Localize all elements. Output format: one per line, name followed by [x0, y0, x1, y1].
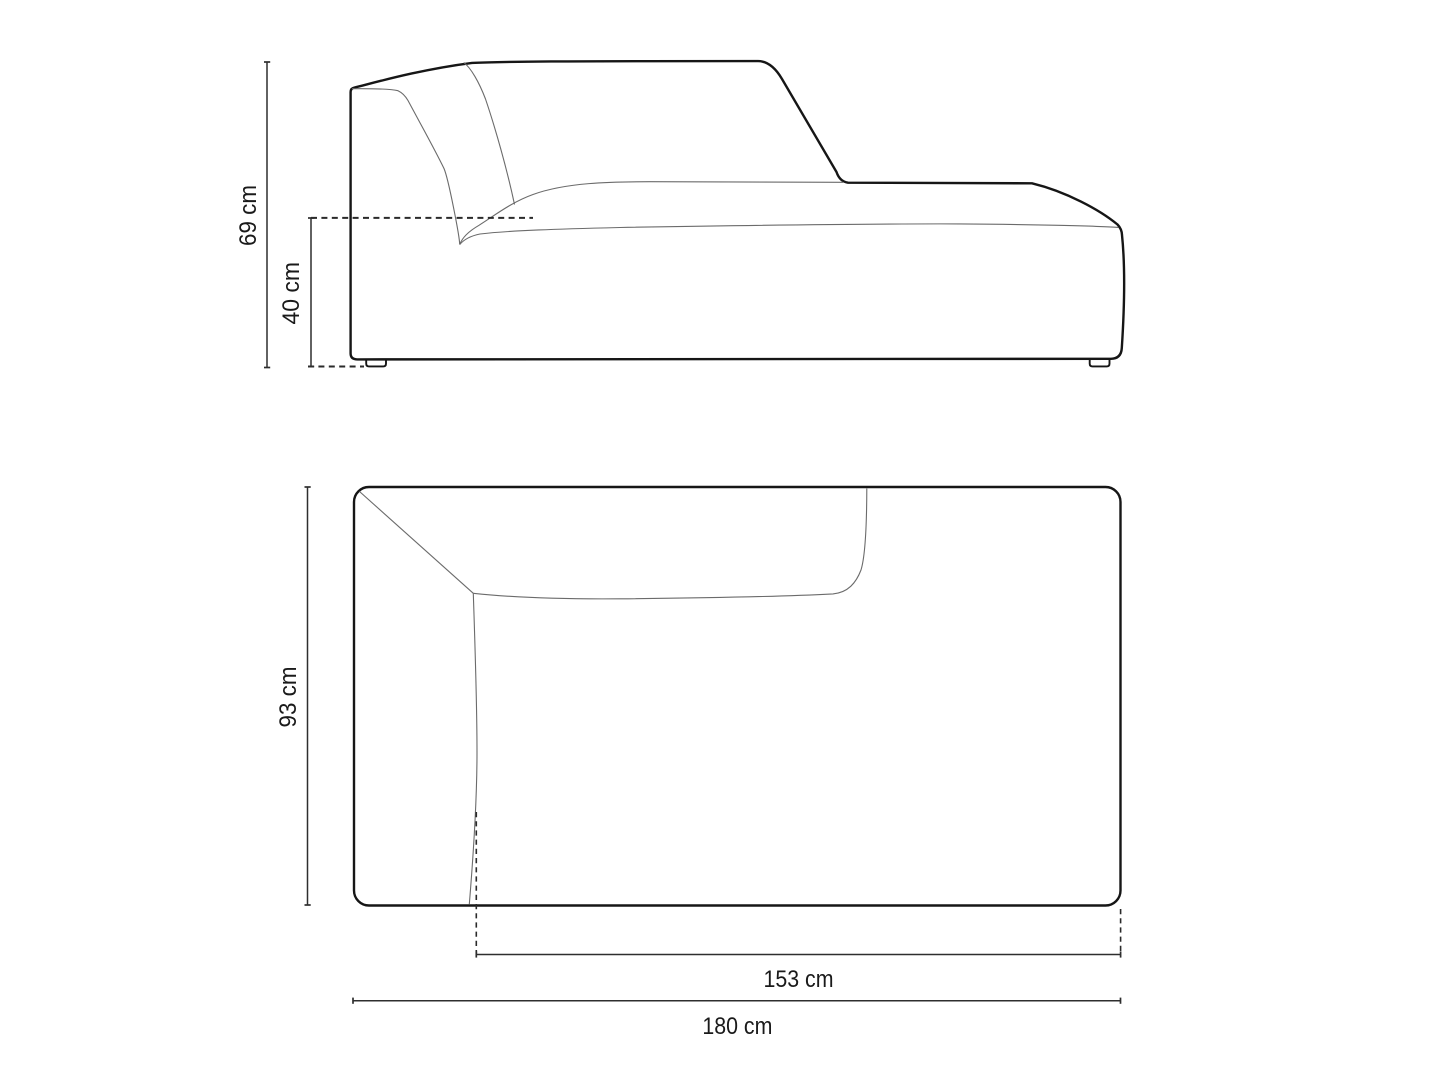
svg-text:40 cm: 40 cm: [278, 262, 305, 325]
svg-text:153 cm: 153 cm: [764, 966, 834, 993]
svg-text:180 cm: 180 cm: [702, 1013, 772, 1040]
svg-text:93 cm: 93 cm: [275, 667, 302, 728]
svg-text:69 cm: 69 cm: [235, 185, 262, 246]
